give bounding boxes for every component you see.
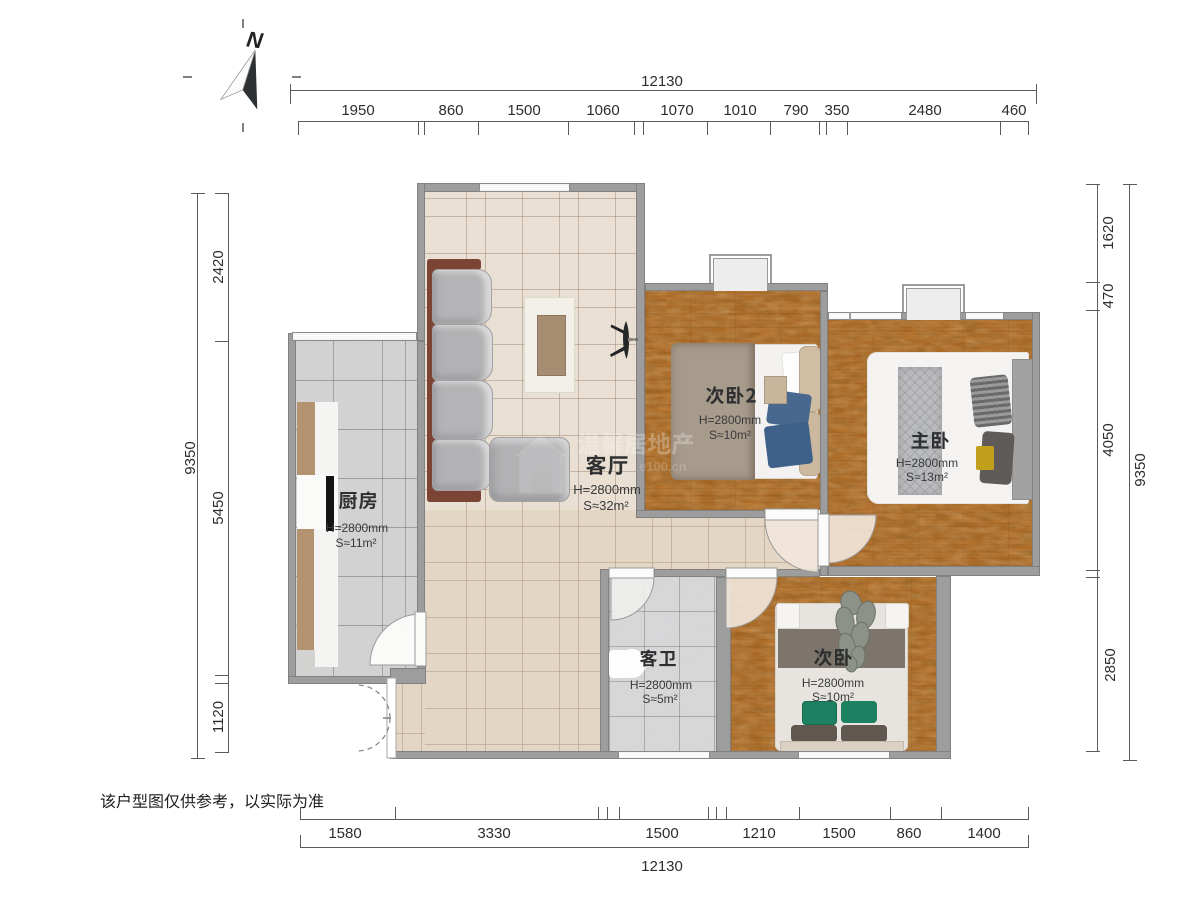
svg-text:470: 470 — [1100, 283, 1117, 308]
svg-text:5450: 5450 — [210, 491, 227, 524]
svg-text:790: 790 — [783, 102, 808, 119]
svg-text:12130: 12130 — [641, 73, 683, 90]
svg-text:2420: 2420 — [210, 250, 227, 283]
svg-text:860: 860 — [896, 825, 921, 842]
svg-text:460: 460 — [1001, 102, 1026, 119]
svg-text:1500: 1500 — [822, 825, 855, 842]
svg-text:1500: 1500 — [507, 102, 540, 119]
svg-text:N: N — [245, 26, 265, 53]
svg-text:1010: 1010 — [723, 102, 756, 119]
svg-text:e100.cn: e100.cn — [639, 459, 687, 474]
svg-text:1210: 1210 — [742, 825, 775, 842]
svg-text:1120: 1120 — [210, 701, 227, 733]
svg-text:1060: 1060 — [586, 102, 619, 119]
svg-text:1400: 1400 — [967, 825, 1000, 842]
svg-text:1580: 1580 — [328, 825, 361, 842]
svg-text:860: 860 — [438, 102, 463, 119]
svg-text:1950: 1950 — [341, 102, 374, 119]
svg-text:1070: 1070 — [660, 102, 693, 119]
svg-text:9350: 9350 — [182, 441, 199, 474]
svg-text:1500: 1500 — [645, 825, 678, 842]
svg-text:3330: 3330 — [477, 825, 510, 842]
svg-text:12130: 12130 — [641, 858, 683, 875]
svg-text:4050: 4050 — [1100, 423, 1117, 456]
svg-text:350: 350 — [824, 102, 849, 119]
svg-text:9350: 9350 — [1132, 453, 1149, 486]
svg-text:2480: 2480 — [908, 102, 941, 119]
svg-text:1620: 1620 — [1100, 216, 1117, 249]
svg-text:2850: 2850 — [1102, 648, 1119, 681]
